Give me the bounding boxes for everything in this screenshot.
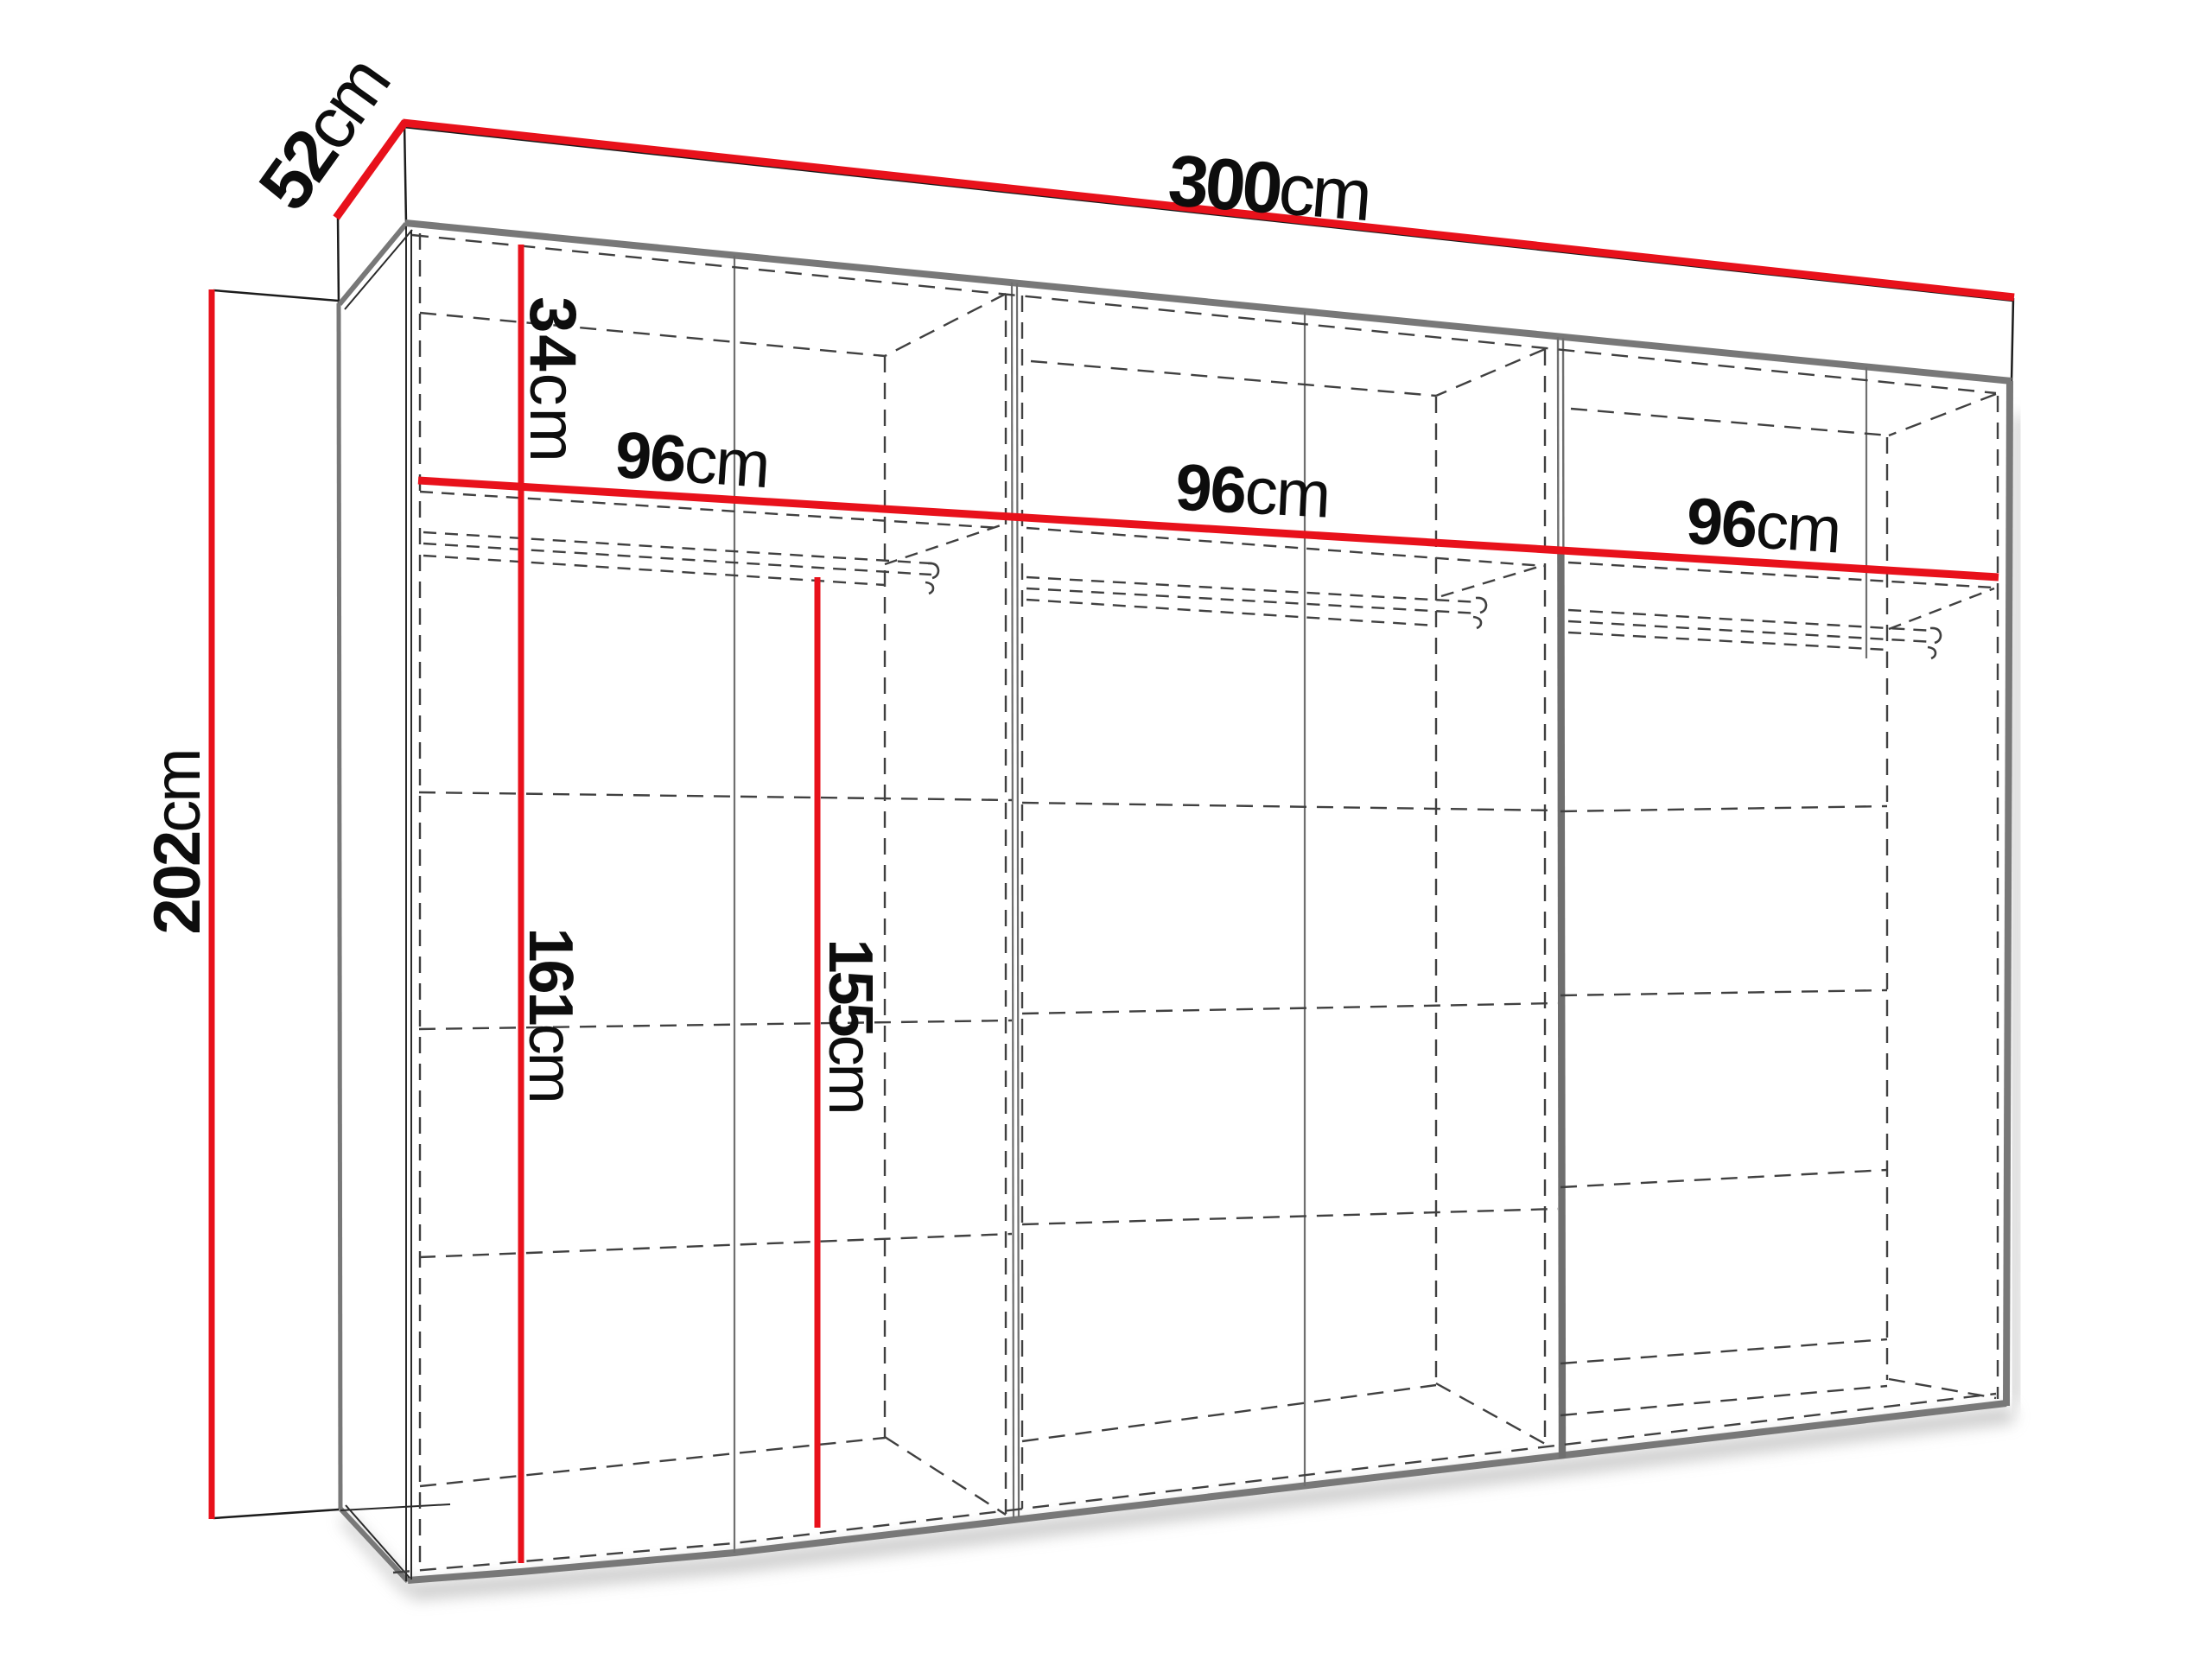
svg-text:155cm: 155cm	[816, 938, 885, 1112]
svg-text:34cm: 34cm	[516, 296, 589, 464]
svg-text:300cm: 300cm	[1166, 139, 1372, 236]
svg-text:52cm: 52cm	[243, 44, 404, 225]
svg-text:161cm: 161cm	[516, 927, 585, 1101]
svg-text:96cm: 96cm	[613, 418, 771, 502]
svg-text:96cm: 96cm	[1173, 450, 1331, 531]
svg-text:202cm: 202cm	[141, 750, 214, 934]
svg-text:96cm: 96cm	[1684, 485, 1842, 568]
